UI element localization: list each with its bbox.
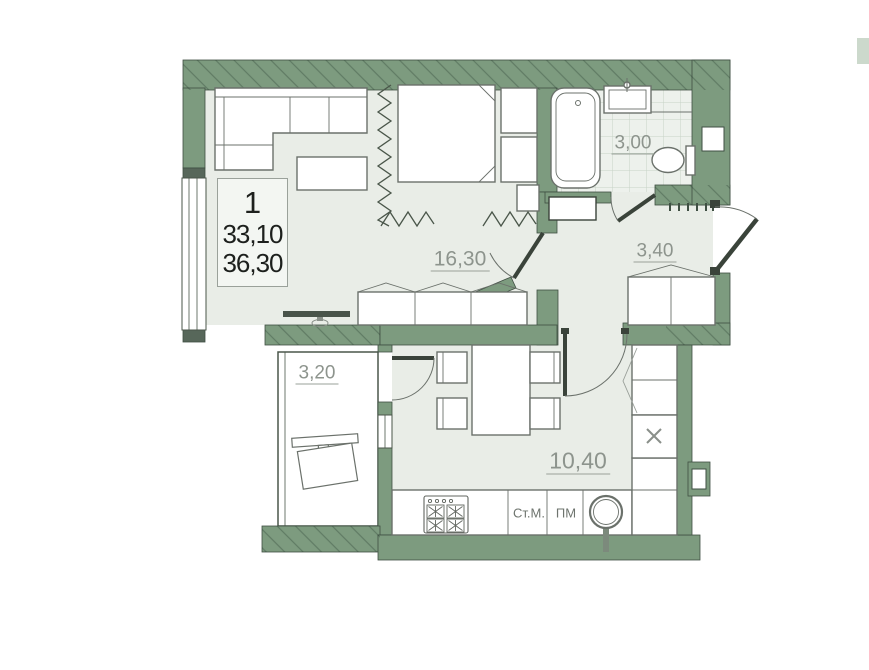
tv <box>283 311 350 317</box>
room-area-label-bathroom: 3,00 <box>612 134 655 155</box>
stove <box>424 496 468 533</box>
nightstand <box>517 185 539 211</box>
apartment-rooms-count: 1 <box>244 186 261 219</box>
chair <box>530 352 560 383</box>
toilet-cistern <box>686 146 695 175</box>
window-left <box>182 178 206 330</box>
room-area-label-kitchen: 10,40 <box>546 450 610 475</box>
floor-plan-drawing <box>0 0 869 670</box>
dishwasher-label: ПМ <box>556 507 576 520</box>
wall-kitchen-bottom <box>378 535 700 560</box>
bathtub-inner <box>556 93 595 181</box>
chair <box>437 352 467 383</box>
coffee-table <box>297 157 367 190</box>
entrance-door-swing <box>715 207 757 219</box>
duct-window-bathroom <box>702 127 724 151</box>
washbasin-inner <box>609 90 646 109</box>
duct-window-kitchen <box>692 469 706 489</box>
balcony-chair <box>297 443 357 489</box>
room-area-label-living: 16,30 <box>431 249 490 272</box>
wall-balcony-kitchen-a <box>378 345 392 352</box>
entrance-door-leaf <box>715 219 757 272</box>
kitchen-sink-stem <box>603 528 609 552</box>
wall-left-upper <box>183 88 205 168</box>
washing-machine-label: Ст.М. <box>513 507 545 520</box>
toilet <box>652 148 684 173</box>
room-area-label-hallway: 3,40 <box>634 242 677 263</box>
window-cap-bottom <box>183 330 205 342</box>
apartment-total-area: 36,30 <box>222 249 282 279</box>
window-cap-top <box>183 168 205 178</box>
apartment-living-area: 33,10 <box>222 220 282 250</box>
bed-pillow-bottom <box>501 137 537 182</box>
window-balcony-kitchen <box>378 415 392 448</box>
wall-balcony-kitchen-b <box>378 402 392 415</box>
wall-balcony-kitchen-c <box>378 448 392 535</box>
wall-kitchen-right <box>677 345 692 535</box>
chair <box>437 398 467 429</box>
wardrobe-living <box>358 292 527 325</box>
wall-living-bottom <box>380 325 557 345</box>
bathtub-drain <box>576 101 581 106</box>
hall-wardrobe <box>628 277 715 325</box>
bed <box>398 85 495 182</box>
dining-table <box>472 345 530 435</box>
kitchen-counter-corner <box>632 458 677 535</box>
adjacent-unit-fragment <box>857 38 869 64</box>
apartment-info-box: 1 33,10 36,30 <box>217 178 288 287</box>
hall-cabinet <box>549 197 596 220</box>
room-area-label-balcony: 3,20 <box>296 364 339 385</box>
balcony-furniture <box>292 434 359 489</box>
bed-pillow-top <box>501 88 537 133</box>
kitchen-door-jamb-right <box>621 328 629 334</box>
floor-plan: 1 33,10 36,30 16,30 3,00 3,40 3,20 10,40… <box>0 0 869 670</box>
chair <box>530 398 560 429</box>
